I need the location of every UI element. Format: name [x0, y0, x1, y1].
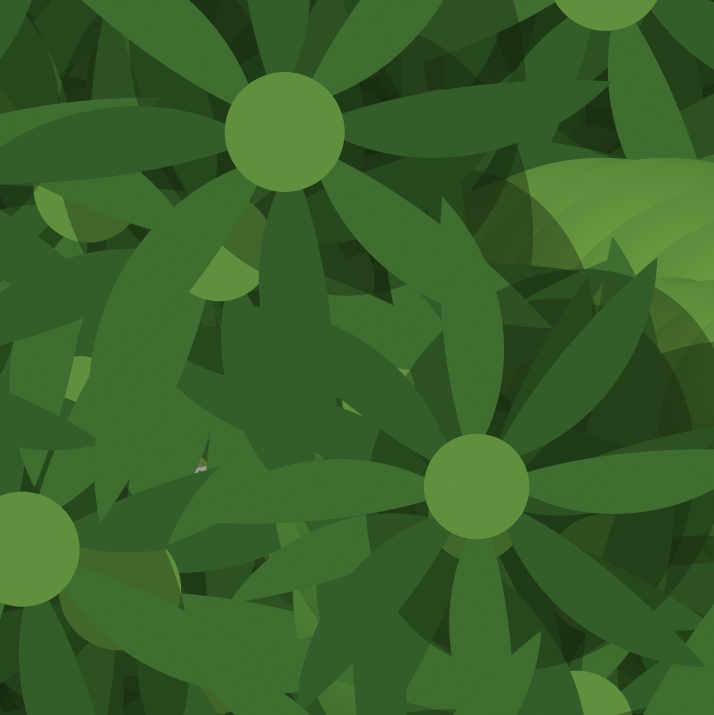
site-plan-aerial-rendering: [0, 0, 714, 715]
master-plan-canvas: [0, 0, 714, 715]
texture-overlay: [0, 0, 714, 715]
